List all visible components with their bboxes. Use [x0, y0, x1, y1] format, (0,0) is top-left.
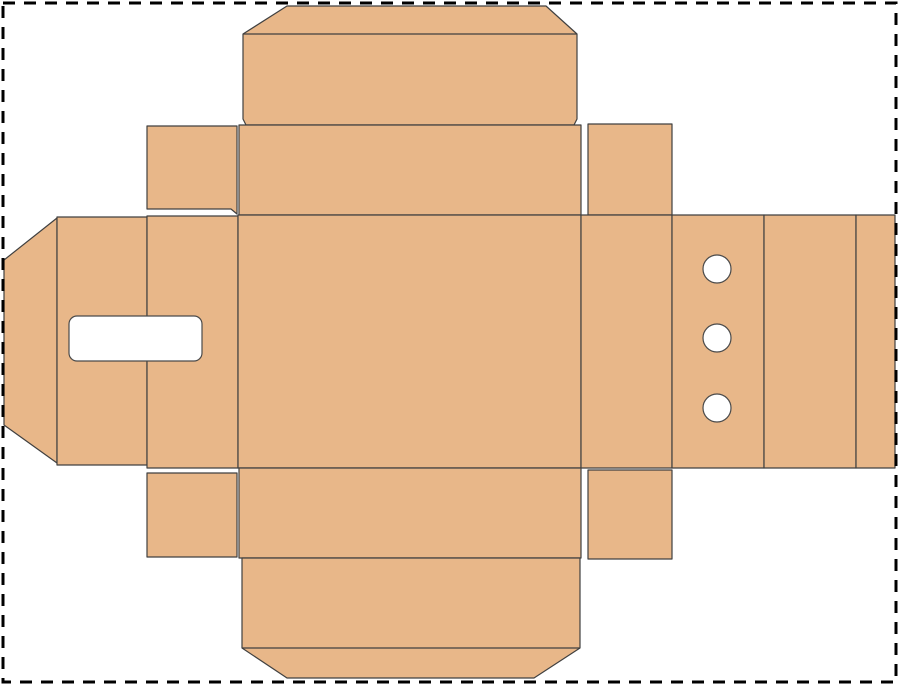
right-side-panel: [581, 215, 672, 468]
dieline-canvas: [0, 0, 900, 687]
right-edge-strip: [856, 215, 895, 468]
bottom-left-dust-flap: [147, 473, 237, 557]
handle-slot-cutout: [69, 316, 202, 361]
vent-hole-bottom: [703, 394, 731, 422]
main-panel: [238, 215, 581, 468]
top-lid-panel: [239, 125, 581, 215]
top-right-dust-flap: [588, 124, 672, 215]
bottom-right-dust-flap: [588, 470, 672, 559]
vent-hole-top: [703, 255, 731, 283]
bottom-lid-panel: [239, 468, 581, 558]
top-glue-flap: [243, 6, 577, 125]
bottom-glue-flap: [242, 558, 580, 678]
top-left-dust-flap: [147, 126, 237, 214]
left-lock-tab: [4, 218, 57, 463]
vent-hole-middle: [703, 324, 731, 352]
right-outer-panel: [764, 215, 856, 468]
template-page: [0, 0, 900, 687]
